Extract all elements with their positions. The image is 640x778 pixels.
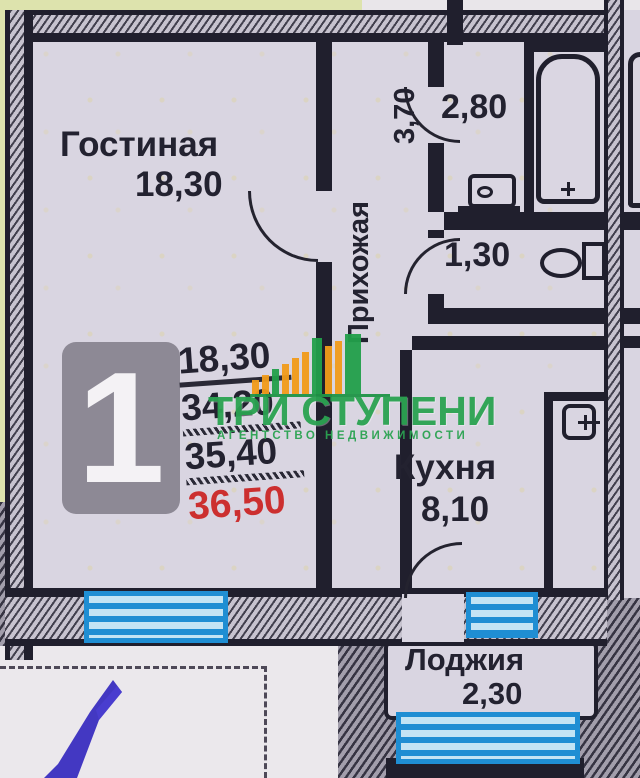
- wall-stub-top: [447, 0, 463, 45]
- wall-kitchen-shaft-h: [544, 392, 606, 401]
- wall-top: [5, 10, 638, 42]
- loggia-area: 2,30: [462, 678, 522, 711]
- toilet-bowl-icon: [540, 248, 582, 278]
- wall-below-wc: [428, 308, 606, 324]
- rooms-count-badge: 1: [62, 342, 180, 514]
- kitchen-area: 8,10: [395, 492, 515, 529]
- living-door-arc-icon: [248, 191, 318, 262]
- wall-living-hall-upper: [316, 41, 332, 191]
- hall-label: Прихожая 3,70: [336, 88, 432, 344]
- bathtub-niche-left: [524, 42, 534, 212]
- bath-area: 2,80: [441, 90, 507, 126]
- neighbor-wall-stub-2: [624, 308, 640, 324]
- wall-left: [5, 10, 33, 660]
- watermark-title: ТРИ СТУПЕНИ: [208, 388, 496, 435]
- living-area: 18,30: [135, 167, 223, 204]
- pen-stroke: [0, 630, 310, 778]
- balcony-door-arc-icon: [404, 542, 462, 598]
- neighbor-bathtub-icon: [628, 52, 640, 208]
- neighbor-wall-stub-1: [624, 212, 640, 230]
- kitchen-label: Кухня: [375, 450, 515, 487]
- hall-name: Прихожая: [336, 88, 382, 344]
- sink-base-line: [458, 206, 520, 212]
- wall-kitchen-top-stub: [624, 336, 640, 348]
- balcony-window-icon: [466, 592, 538, 638]
- floor-plan: Лоджия 2,30 Гости: [0, 0, 640, 778]
- wall-bath-wc-divider: [444, 212, 606, 230]
- bathtub-niche-top: [524, 42, 604, 52]
- toilet-tank-icon: [582, 242, 606, 280]
- wc-area: 1,30: [444, 238, 510, 274]
- living-label: Гостиная: [60, 127, 218, 164]
- hall-area: 3,70: [382, 88, 428, 344]
- wall-party-right: [604, 0, 624, 600]
- outside-area-top-right: [362, 0, 640, 10]
- watermark: ТРИ СТУПЕНИ АГЕНТСТВО НЕДВИЖИМОСТИ: [205, 328, 450, 448]
- sink-bowl-icon: [477, 186, 493, 198]
- watermark-subtitle: АГЕНТСТВО НЕДВИЖИМОСТИ: [217, 430, 468, 442]
- wall-kitchen-shaft-v: [544, 392, 553, 590]
- area-row-total: 36,50: [187, 478, 318, 528]
- watermark-logo-icon: [252, 332, 392, 396]
- electric-panel-icon: [562, 404, 596, 440]
- wall-bath-left-upper: [428, 41, 444, 87]
- balcony-door-gap: [402, 594, 464, 642]
- bathtub-drain-icon: [561, 182, 575, 196]
- loggia-window-icon: [396, 712, 580, 764]
- rooms-count: 1: [77, 349, 165, 507]
- loggia-label: Лоджия: [405, 644, 524, 677]
